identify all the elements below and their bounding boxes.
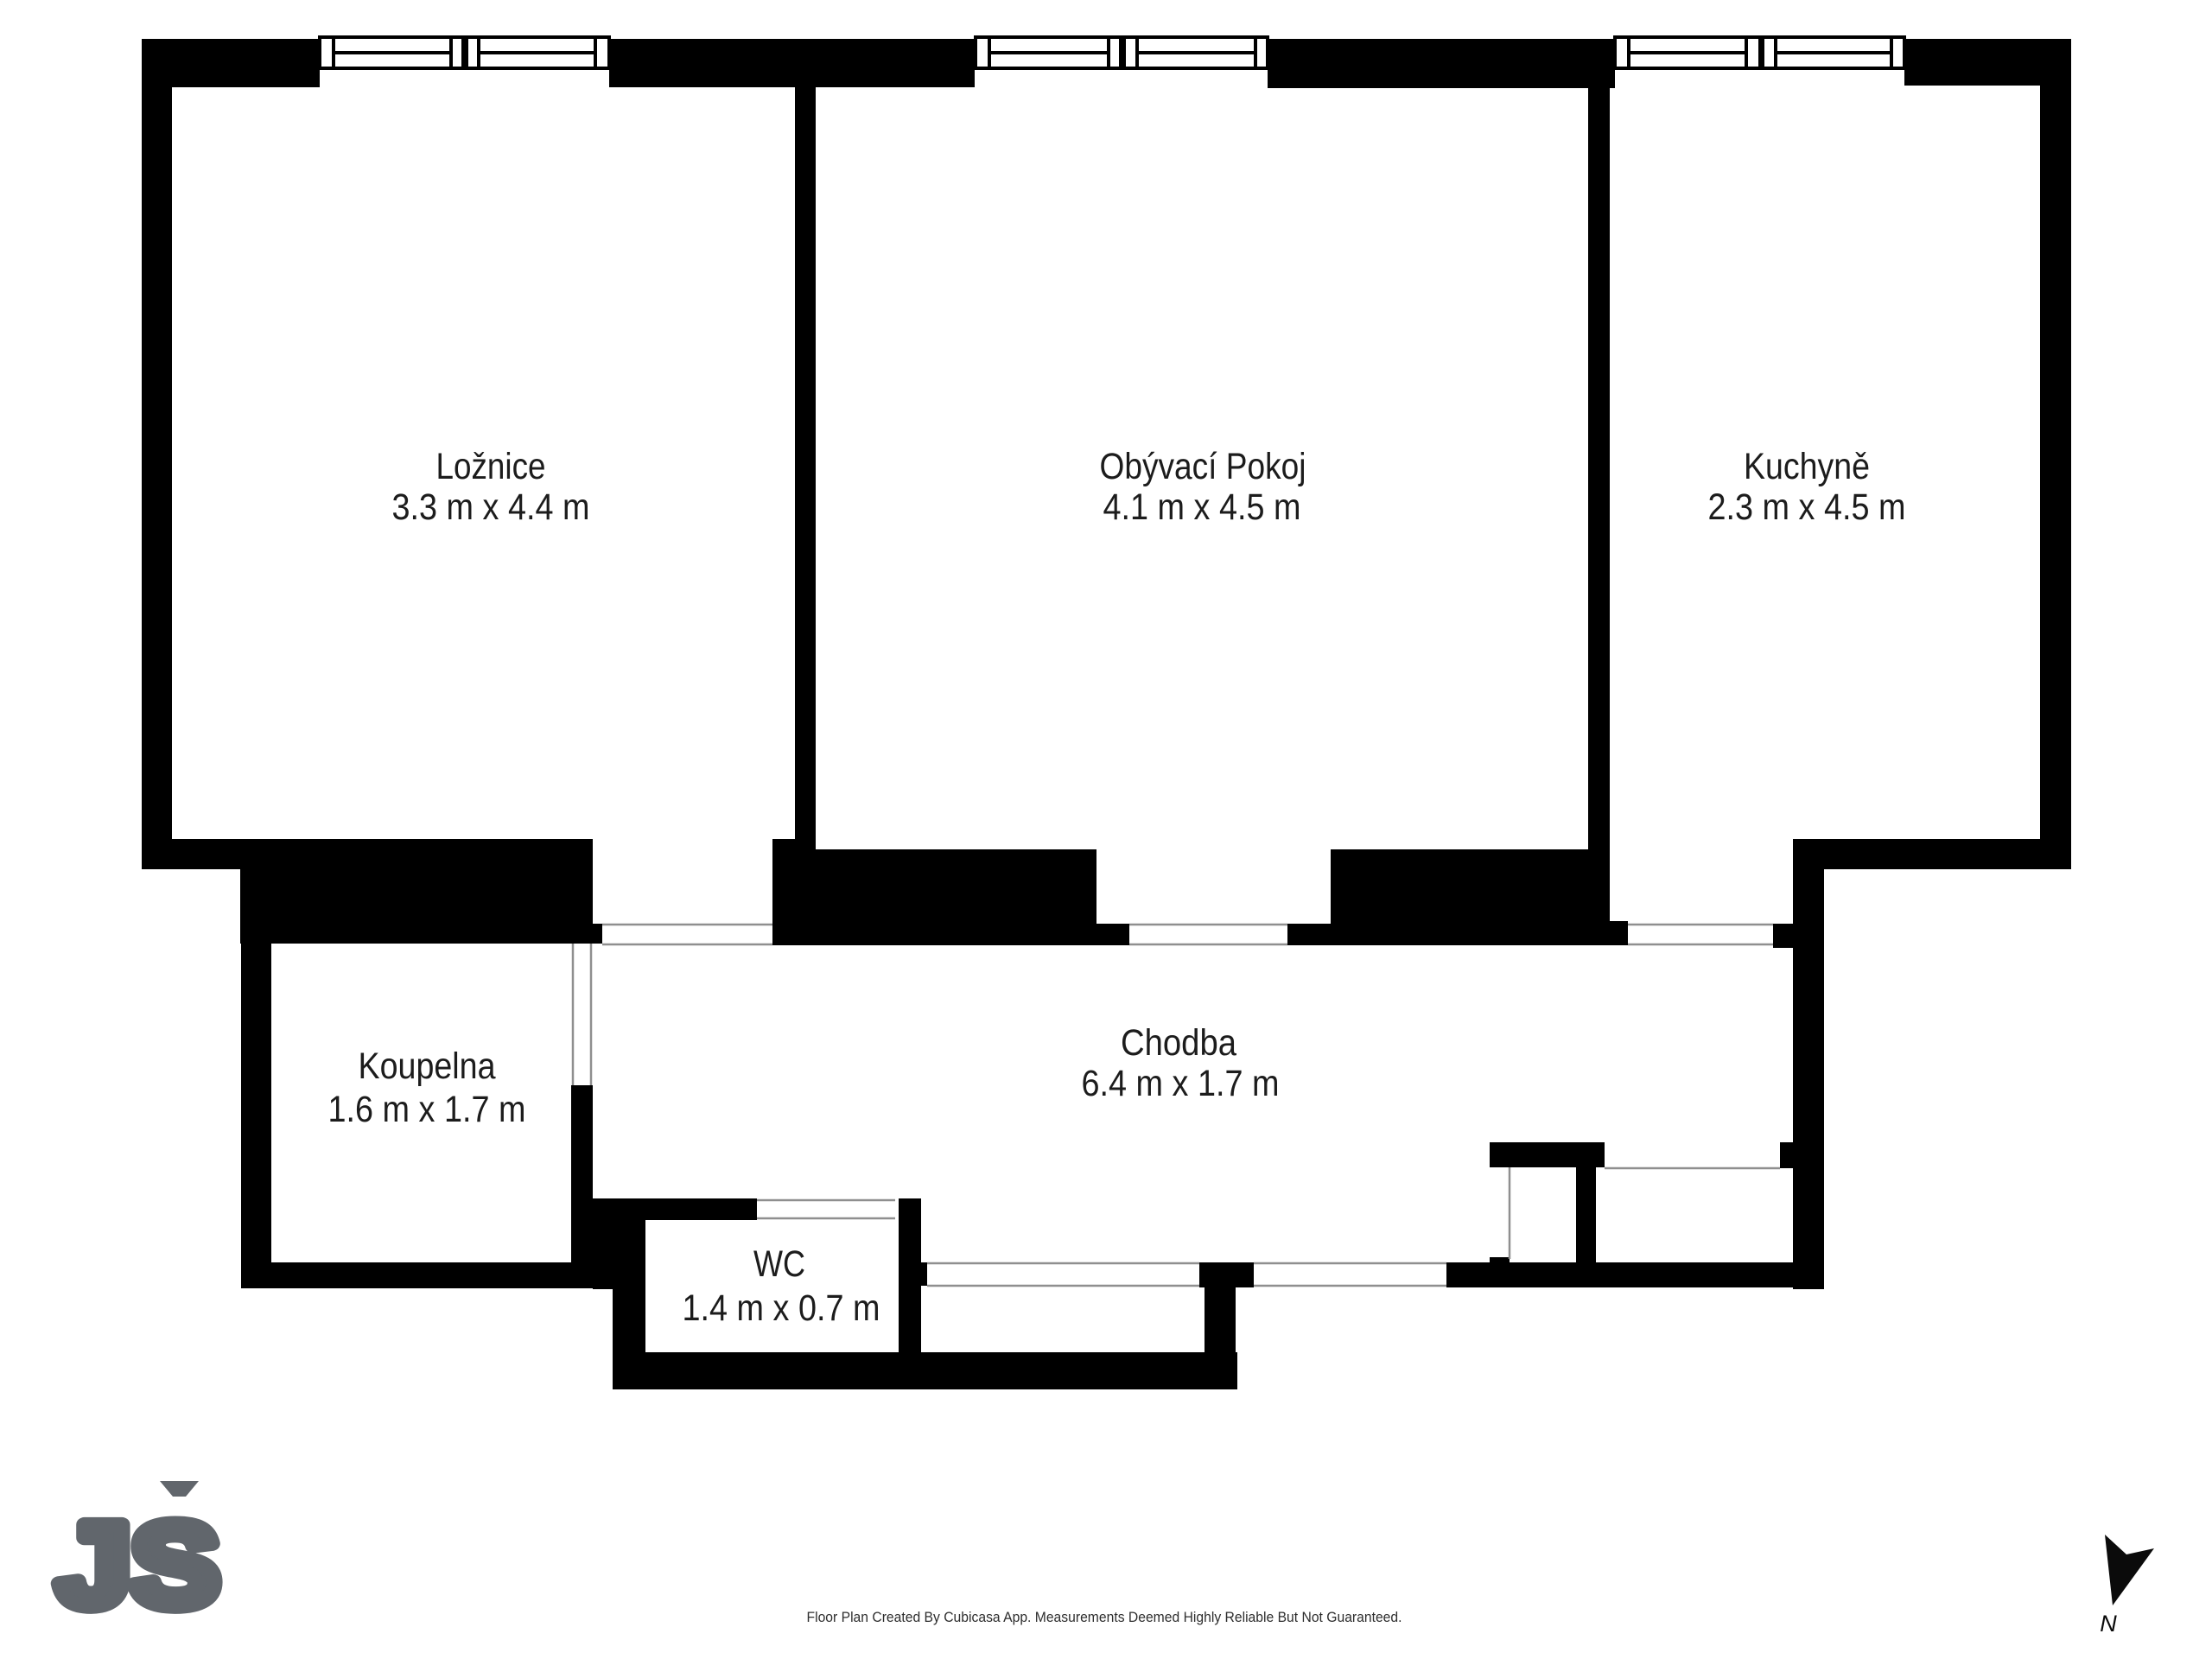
svg-text:Floor Plan Created By Cubicasa: Floor Plan Created By Cubicasa App. Meas… <box>807 1609 1402 1625</box>
svg-text:6.4 m x 1.7 m: 6.4 m x 1.7 m <box>1082 1063 1280 1104</box>
svg-text:WC: WC <box>753 1243 805 1285</box>
svg-text:3.3 m x 4.4 m: 3.3 m x 4.4 m <box>392 486 590 528</box>
svg-text:1.6 m x 1.7 m: 1.6 m x 1.7 m <box>328 1089 526 1130</box>
svg-text:Chodba: Chodba <box>1121 1022 1236 1064</box>
svg-text:Ložnice: Ložnice <box>436 446 546 487</box>
svg-text:Kuchyně: Kuchyně <box>1744 446 1870 487</box>
svg-text:N: N <box>2100 1611 2117 1637</box>
svg-text:1.4 m x 0.7 m: 1.4 m x 0.7 m <box>683 1287 880 1329</box>
svg-text:4.1 m x 4.5 m: 4.1 m x 4.5 m <box>1103 486 1301 528</box>
svg-text:Obývací Pokoj: Obývací Pokoj <box>1100 446 1306 487</box>
svg-text:Koupelna: Koupelna <box>359 1046 496 1087</box>
svg-text:JS: JS <box>57 1499 219 1630</box>
svg-text:2.3 m x 4.5 m: 2.3 m x 4.5 m <box>1708 486 1906 528</box>
